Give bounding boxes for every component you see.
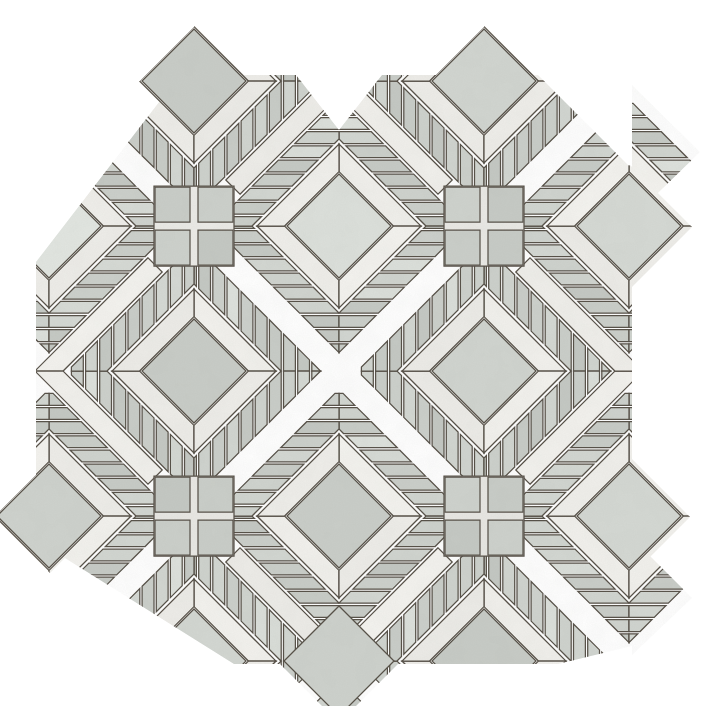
mosaic-tile-sheet — [0, 0, 706, 706]
tile-product-photo — [0, 0, 706, 706]
